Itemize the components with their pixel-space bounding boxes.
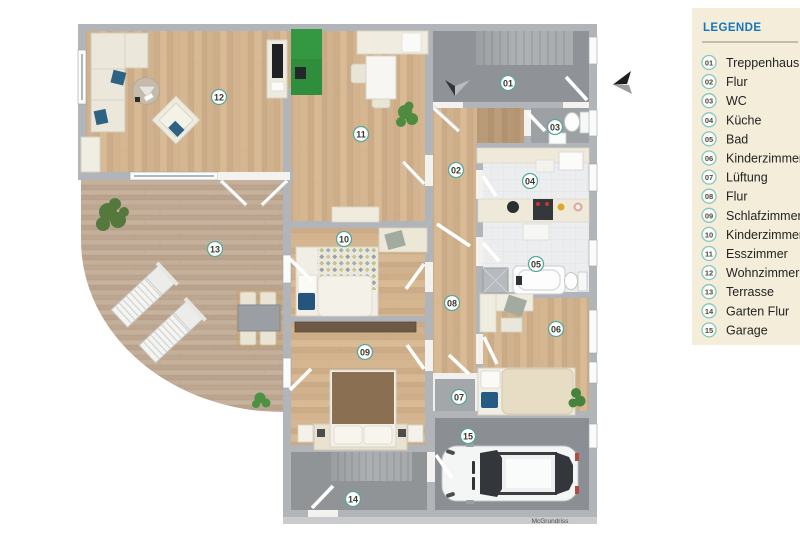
svg-text:09: 09 (360, 348, 370, 358)
svg-text:03: 03 (705, 97, 713, 106)
svg-text:15: 15 (463, 432, 473, 442)
svg-text:11: 11 (705, 250, 713, 259)
svg-text:Lüftung: Lüftung (726, 171, 768, 185)
svg-text:Garten Flur: Garten Flur (726, 304, 789, 318)
svg-text:12: 12 (214, 93, 224, 103)
svg-text:05: 05 (531, 260, 541, 270)
svg-text:13: 13 (210, 245, 220, 255)
svg-text:03: 03 (550, 123, 560, 133)
svg-text:11: 11 (356, 130, 366, 140)
svg-text:14: 14 (348, 495, 358, 505)
svg-text:09: 09 (705, 211, 713, 220)
svg-text:06: 06 (705, 154, 713, 163)
svg-text:15: 15 (705, 326, 713, 335)
svg-text:02: 02 (705, 78, 713, 87)
svg-text:10: 10 (705, 230, 713, 239)
svg-text:Esszimmer: Esszimmer (726, 247, 788, 261)
svg-text:LEGENDE: LEGENDE (703, 22, 761, 34)
svg-text:13: 13 (705, 288, 713, 297)
svg-text:05: 05 (705, 135, 713, 144)
svg-text:Treppenhaus: Treppenhaus (726, 56, 799, 70)
svg-text:01: 01 (503, 79, 513, 89)
svg-text:Bad: Bad (726, 132, 748, 146)
svg-text:WC: WC (726, 94, 747, 108)
svg-text:12: 12 (705, 269, 713, 278)
svg-text:McGrundriss: McGrundriss (532, 518, 570, 525)
svg-text:08: 08 (447, 299, 457, 309)
svg-text:10: 10 (339, 235, 349, 245)
svg-text:Flur: Flur (726, 190, 748, 204)
svg-text:07: 07 (705, 173, 713, 182)
svg-text:07: 07 (454, 393, 464, 403)
svg-text:04: 04 (705, 116, 714, 125)
svg-text:01: 01 (705, 59, 713, 68)
svg-text:02: 02 (451, 166, 461, 176)
svg-text:Schlafzimmer: Schlafzimmer (726, 209, 800, 223)
svg-text:Kinderzimmer: Kinderzimmer (726, 228, 800, 242)
svg-text:Wohnzimmer: Wohnzimmer (726, 266, 799, 280)
svg-text:Küche: Küche (726, 113, 761, 127)
svg-text:Terrasse: Terrasse (726, 285, 774, 299)
svg-text:Kinderzimmer: Kinderzimmer (726, 152, 800, 166)
svg-text:06: 06 (551, 325, 561, 335)
svg-text:14: 14 (705, 307, 714, 316)
svg-text:Flur: Flur (726, 75, 748, 89)
svg-text:Garage: Garage (726, 323, 768, 337)
svg-text:04: 04 (525, 177, 535, 187)
svg-text:08: 08 (705, 192, 713, 201)
